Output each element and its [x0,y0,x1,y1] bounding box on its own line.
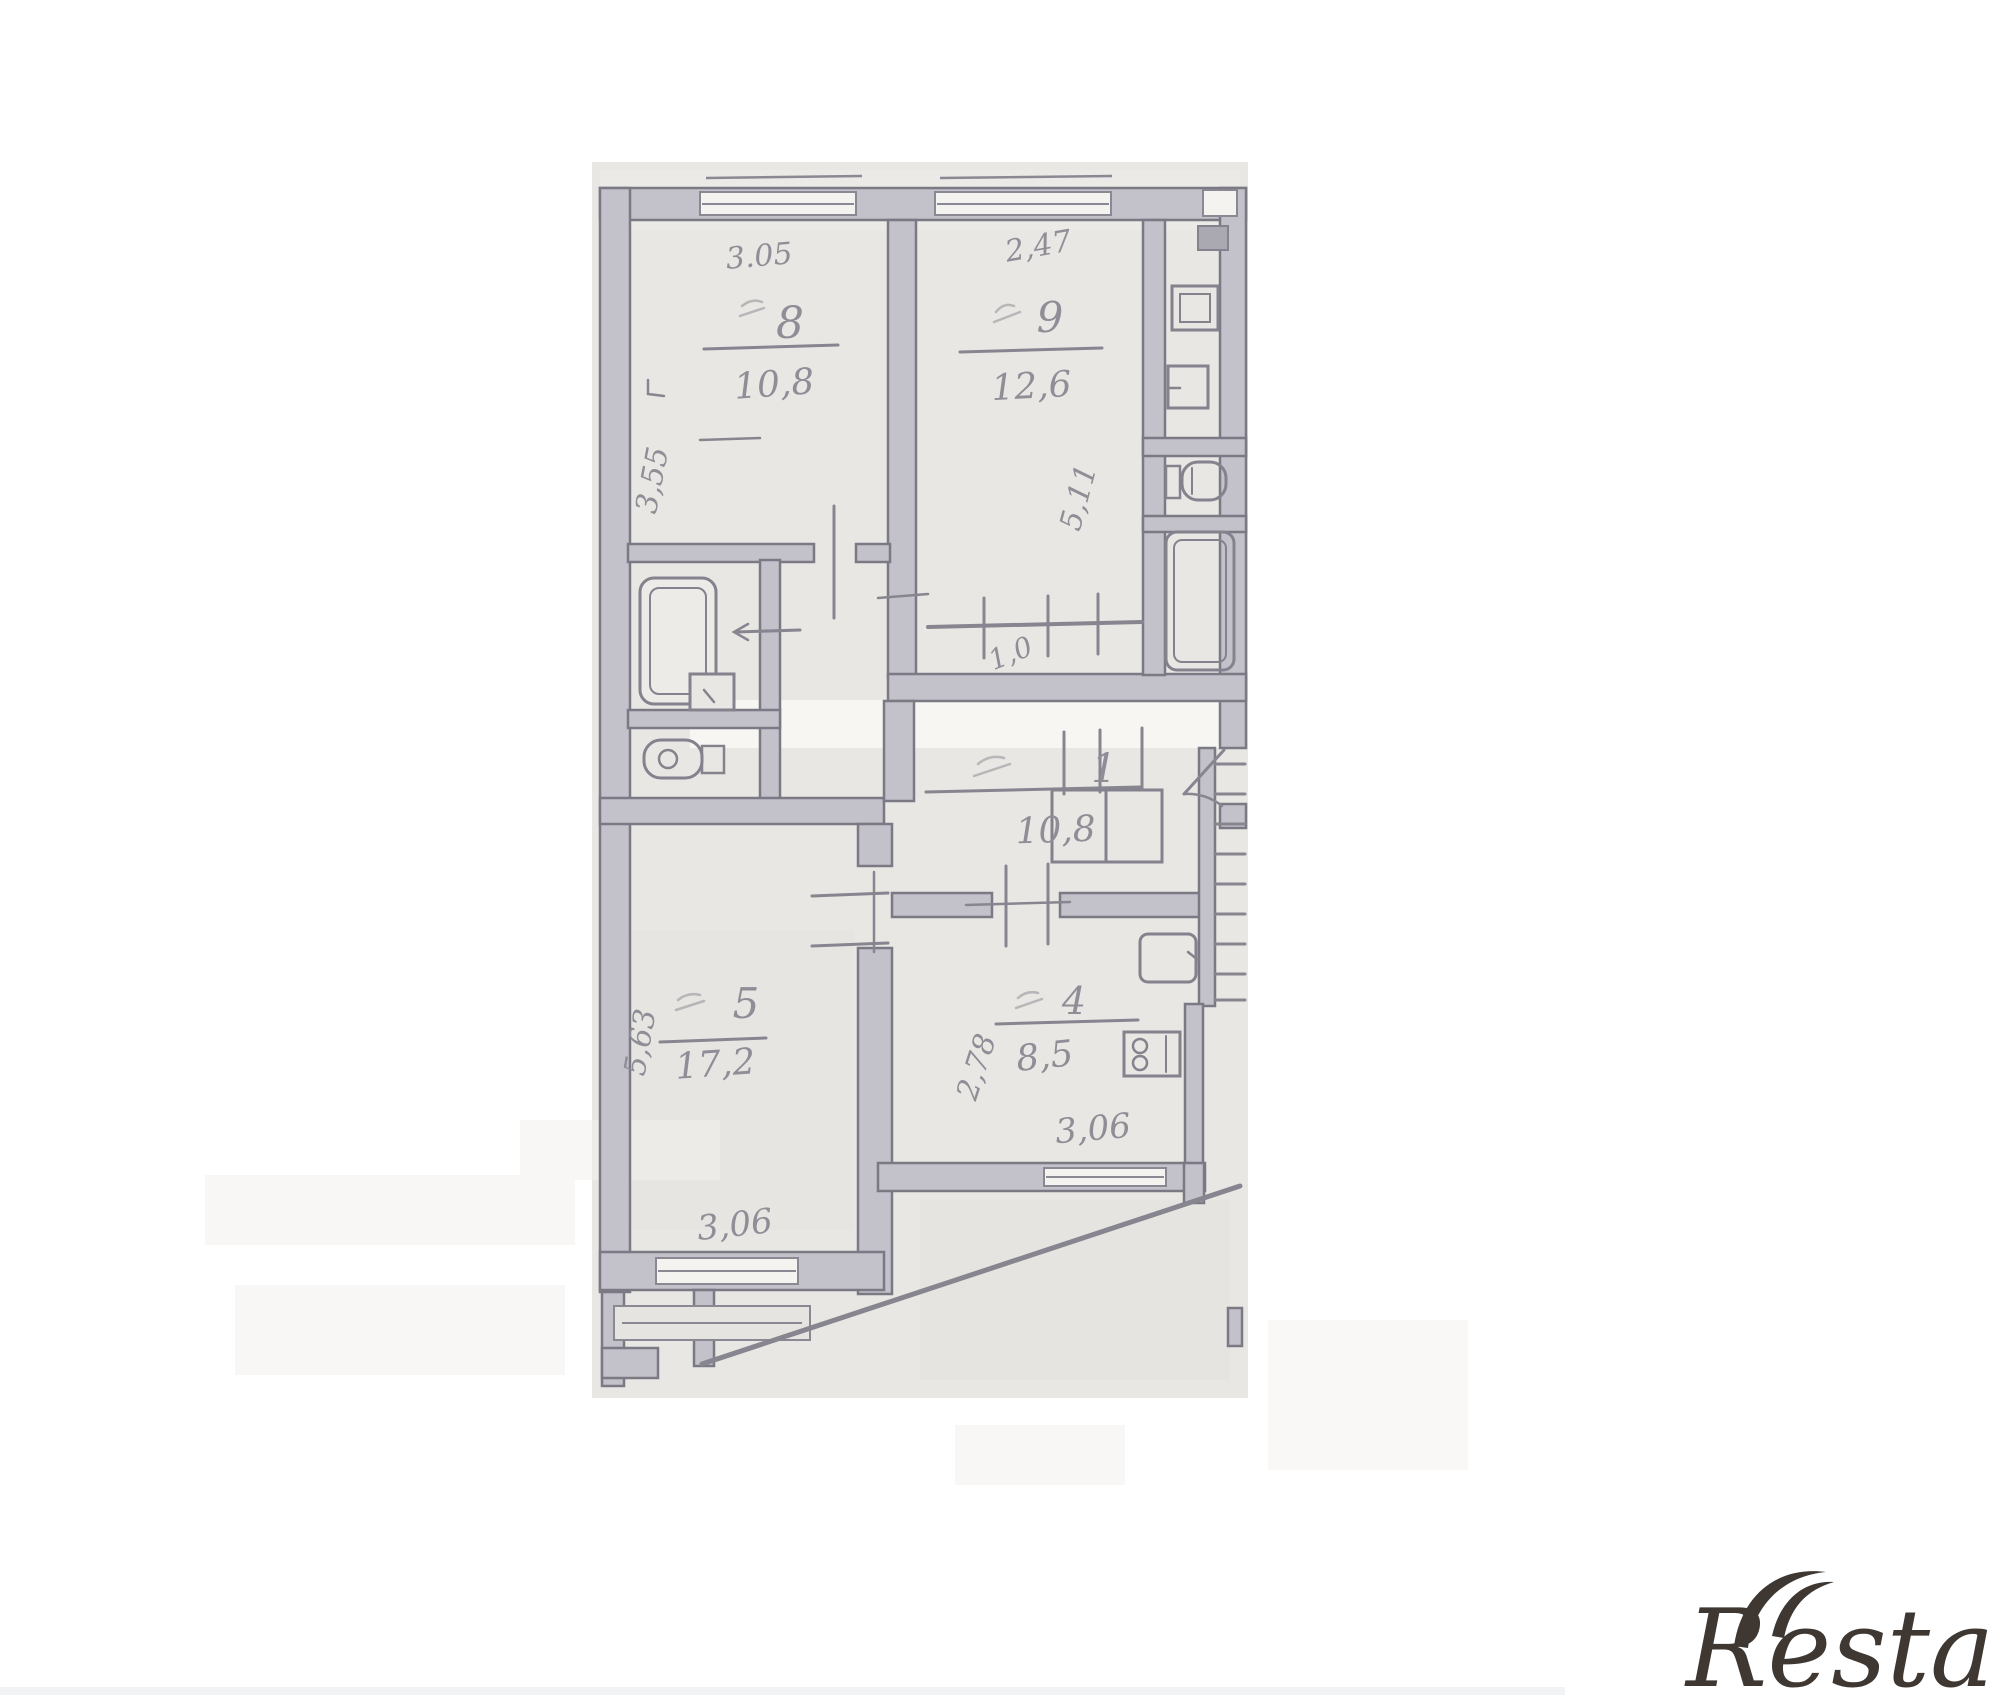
hall1-number: 1 [1091,746,1116,792]
smudge-2 [235,1285,565,1375]
room8-width-dim: 3.05 [724,236,794,277]
bath-door-arrow [736,630,800,632]
floor-plan-canvas: 3.05 8 10,8 3,55 2,47 9 12,6 5,11 1,0 1 … [0,0,2000,1695]
wall-room8-bottom-b [856,544,890,562]
wall-right-bottom-stub [1228,1308,1242,1346]
room5-area: 17,2 [674,1041,757,1087]
room9-number: 9 [1037,293,1064,342]
room8-number: 8 [776,298,804,349]
wall-below-stairs [1185,1004,1203,1166]
wall-unit-divider-right [888,674,1246,701]
room9-area: 12,6 [990,364,1072,409]
restate-logo: Restate [1684,1571,2000,1695]
wall-room5-right-b [858,948,892,1294]
wall-room5-right-a [858,824,892,866]
wall-left [600,188,630,1292]
kitchen4-width-dim: 3,06 [1054,1106,1133,1152]
logo-wordmark: Restate [1684,1587,2000,1695]
wall-stairs [1199,748,1215,1006]
wall-unit-divider-left [600,798,884,824]
smudge-1 [205,1175,575,1245]
room5-number: 5 [733,979,760,1028]
wall-bath-right [760,560,780,800]
smudge-4 [1268,1320,1468,1470]
room8-area: 10,8 [733,361,816,407]
wall-kitchen-top-b [1060,893,1203,917]
vent-shaft-icon [1198,226,1228,250]
kitchen4-number: 4 [1061,979,1086,1023]
wall-bottomleft-stub [602,1348,658,1378]
wall-room8-room9 [888,220,916,678]
smudge-5 [955,1425,1125,1485]
window-utility-slot [1203,190,1237,216]
wall-utility-2 [1143,516,1246,532]
room5-width-dim: 3,06 [695,1201,774,1249]
sink-icon [690,674,734,710]
wall-utility-1 [1143,438,1246,456]
wall-bath-wc [628,710,780,728]
wall-top [600,188,1246,220]
floor-plan-scan-page: 3.05 8 10,8 3,55 2,47 9 12,6 5,11 1,0 1 … [0,0,2000,1695]
paper-shade-2 [920,1200,1230,1380]
wall-hall-boundary [884,701,914,801]
scan-edge-strip [0,1687,1565,1695]
kitchen4-area: 8,5 [1014,1033,1075,1080]
wall-room8-bottom-a [628,544,814,562]
hall1-area: 10,8 [1015,809,1097,853]
